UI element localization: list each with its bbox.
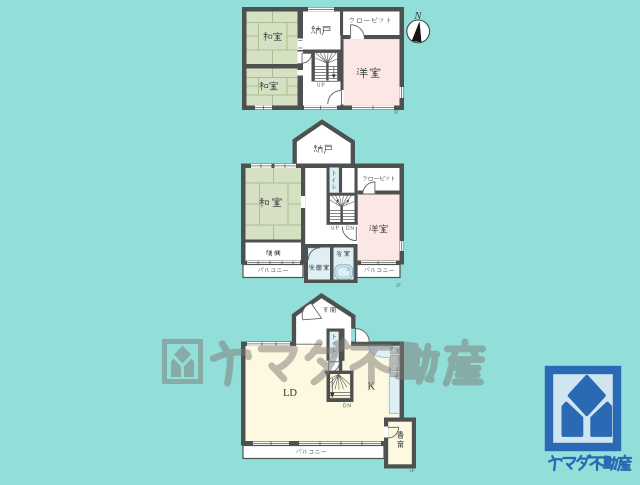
svg-text:1F: 1F	[410, 468, 415, 473]
svg-text:LD: LD	[283, 388, 297, 399]
svg-text:N: N	[413, 11, 422, 22]
svg-text:3F: 3F	[394, 110, 399, 115]
svg-text:2F: 2F	[396, 283, 401, 288]
